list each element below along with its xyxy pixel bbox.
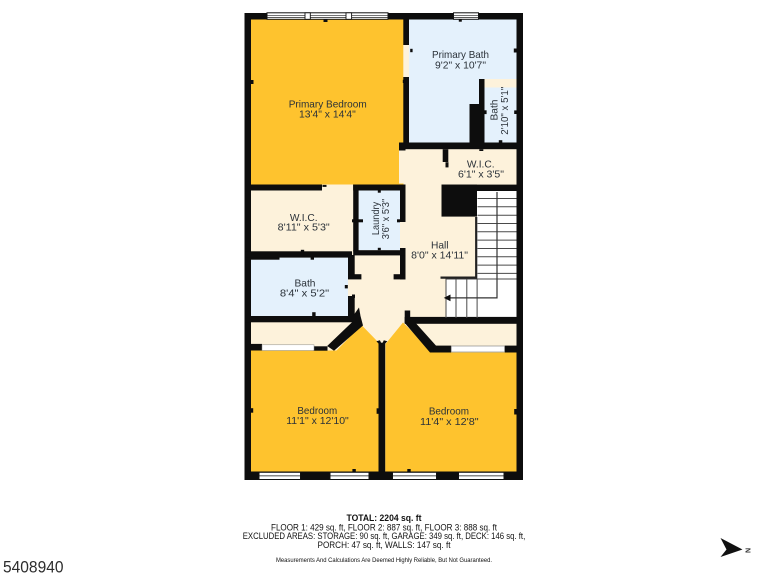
svg-text:8'4" x 5'2": 8'4" x 5'2" <box>280 289 330 300</box>
svg-text:11'4" x 12'8": 11'4" x 12'8" <box>420 417 479 428</box>
svg-text:9'2" x 10'7": 9'2" x 10'7" <box>435 60 486 71</box>
svg-text:8'0" x 14'11": 8'0" x 14'11" <box>411 250 468 261</box>
svg-text:6'1" x 3'5": 6'1" x 3'5" <box>458 170 504 181</box>
svg-text:2'10" x 5'1": 2'10" x 5'1" <box>500 86 511 134</box>
svg-text:13'4" x 14'4": 13'4" x 14'4" <box>299 109 356 120</box>
svg-text:3'6" x 5'3": 3'6" x 5'3" <box>381 198 392 239</box>
svg-text:11'1" x 12'10": 11'1" x 12'10" <box>286 416 349 427</box>
svg-text:N: N <box>743 548 750 553</box>
svg-text:Bath: Bath <box>489 100 500 121</box>
svg-text:8'11" x 5'3": 8'11" x 5'3" <box>278 223 331 234</box>
svg-text:Measurements And Calculations: Measurements And Calculations Are Deemed… <box>276 557 492 564</box>
svg-text:5408940: 5408940 <box>3 557 64 576</box>
svg-text:PORCH: 47 sq. ft, WALLS: 147 s: PORCH: 47 sq. ft, WALLS: 147 sq. ft <box>318 540 452 550</box>
